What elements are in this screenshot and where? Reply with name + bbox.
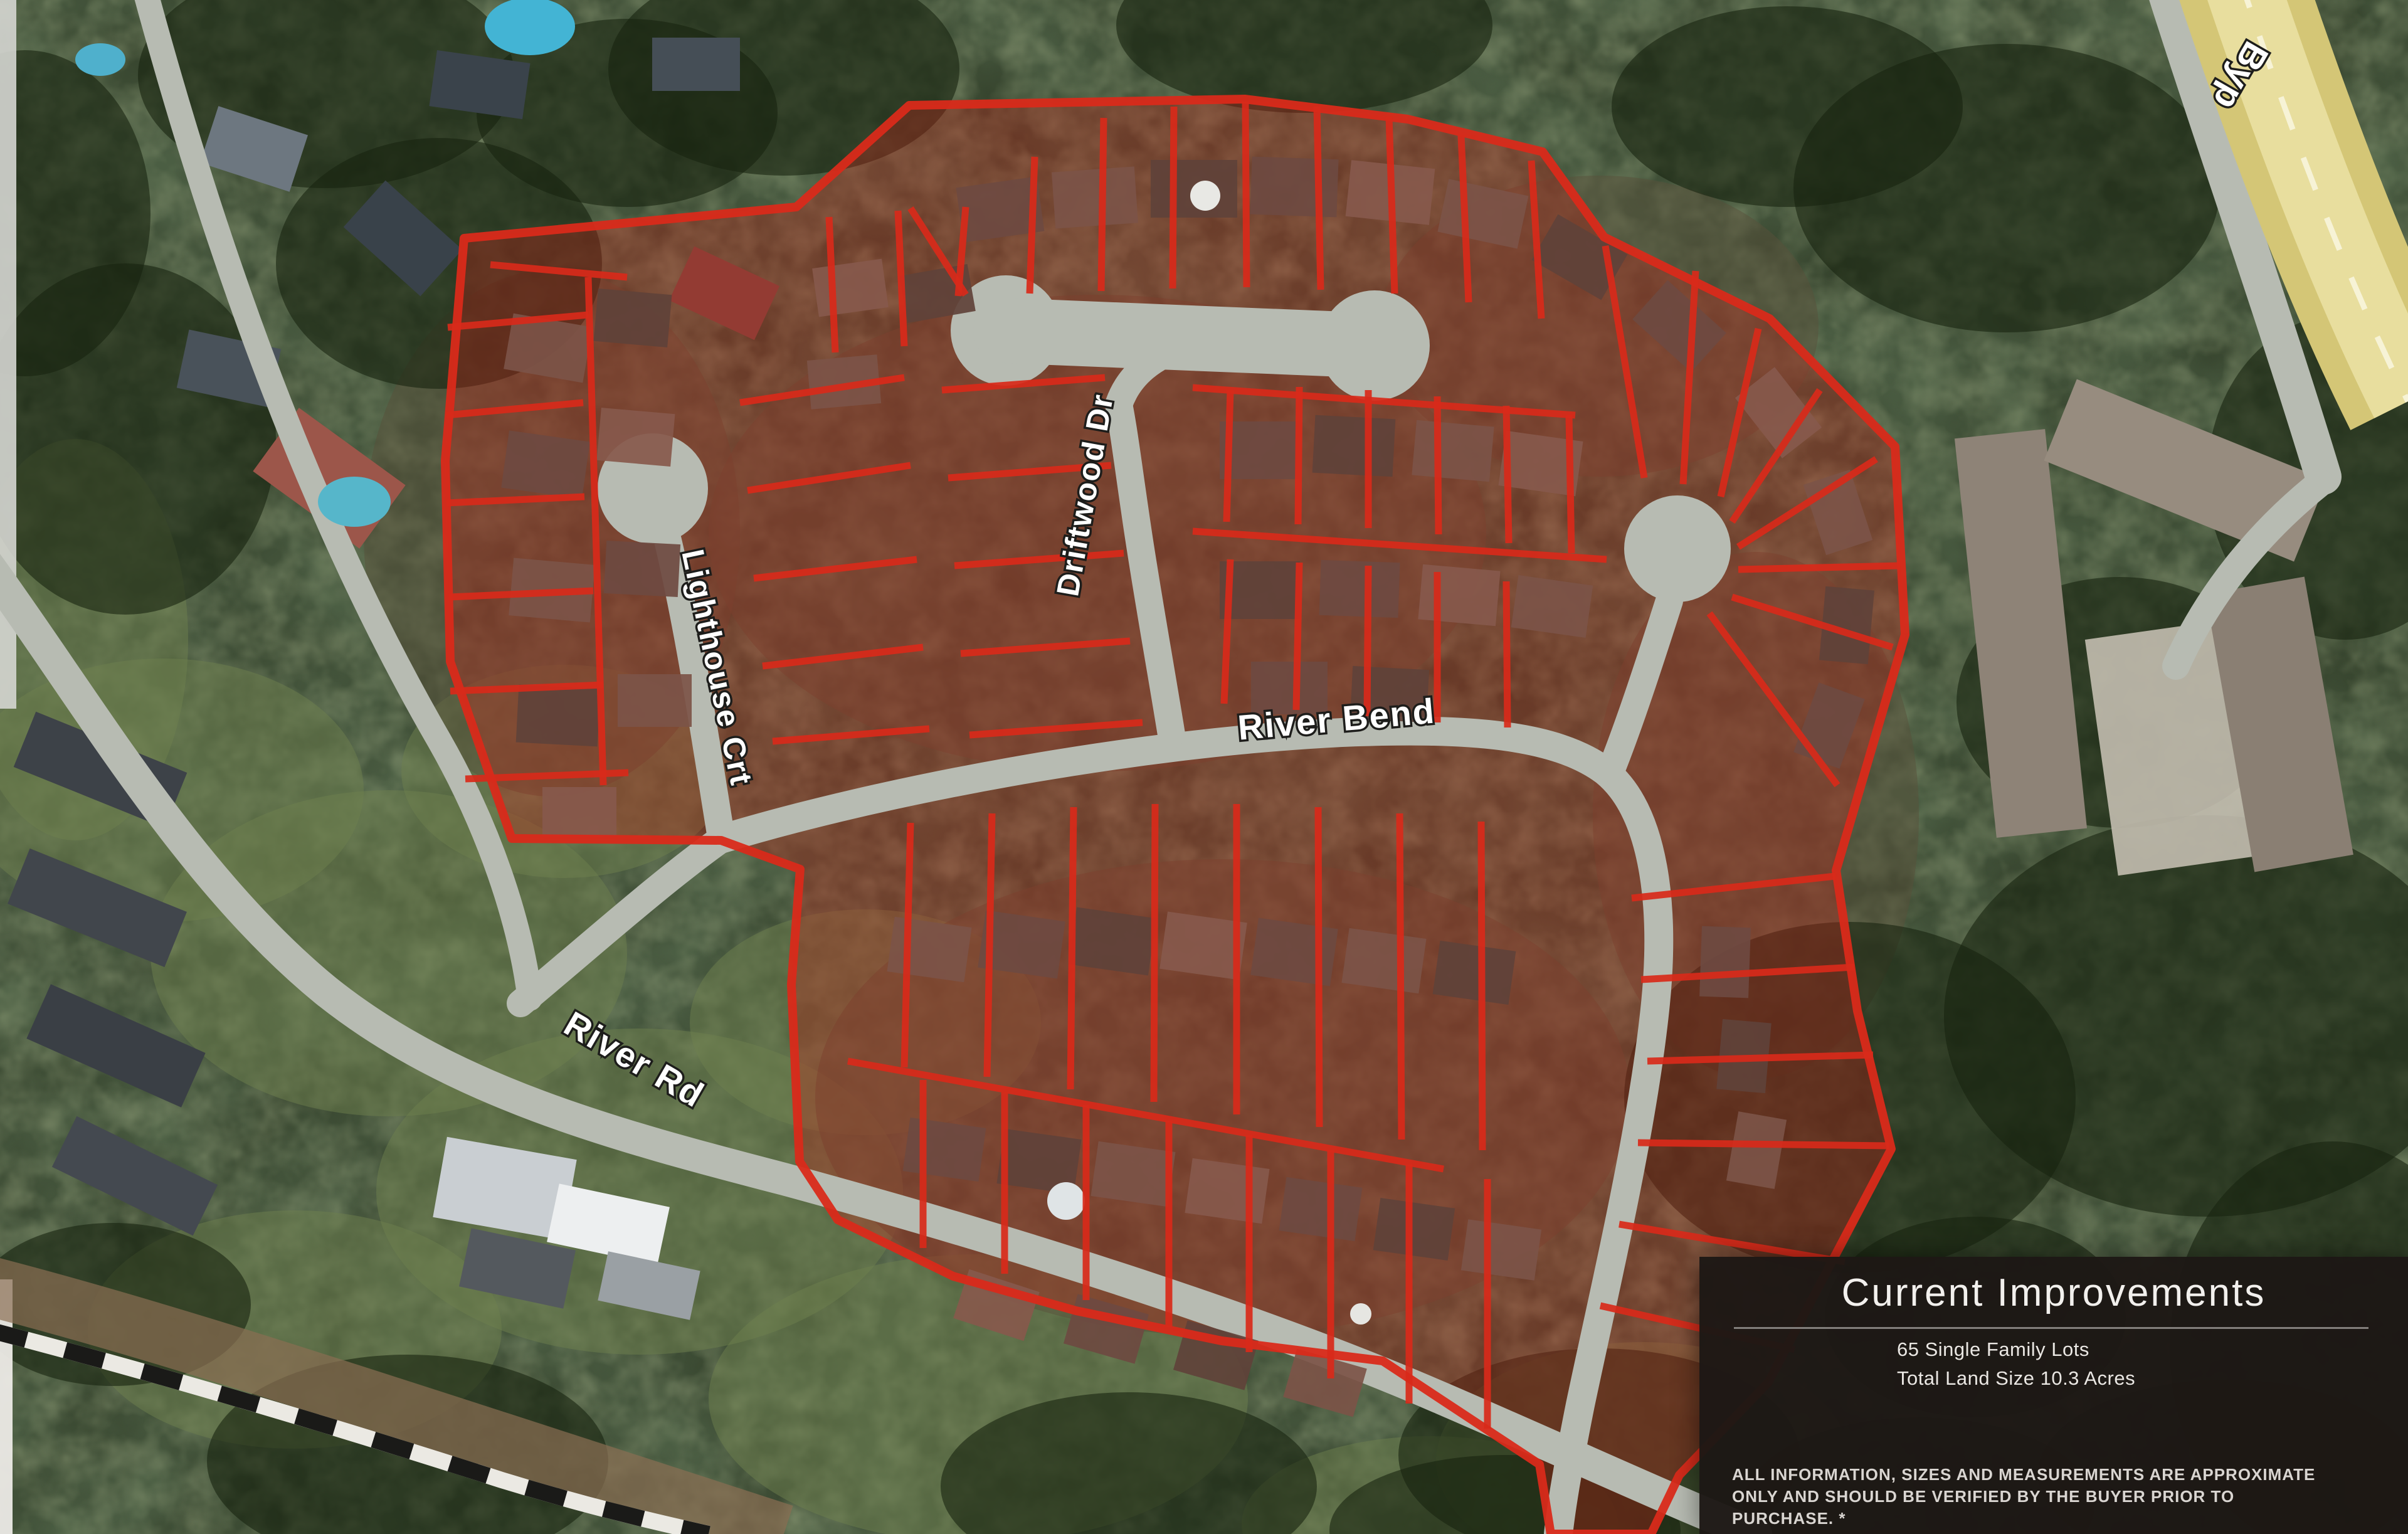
listing-map-view: Lighthouse CrtDriftwood DrRiver BendRive… bbox=[0, 0, 2408, 1534]
panel-disclaimer: ALL INFORMATION, SIZES AND MEASUREMENTS … bbox=[1732, 1464, 2334, 1530]
panel-stat-land-size: Total Land Size 10.3 Acres bbox=[1897, 1367, 2135, 1390]
current-improvements-panel: Current Improvements 65 Single Family Lo… bbox=[1699, 1257, 2408, 1534]
panel-stat-lots: 65 Single Family Lots bbox=[1897, 1338, 2089, 1361]
panel-title: Current Improvements bbox=[1699, 1271, 2408, 1315]
panel-divider bbox=[1734, 1327, 2368, 1329]
